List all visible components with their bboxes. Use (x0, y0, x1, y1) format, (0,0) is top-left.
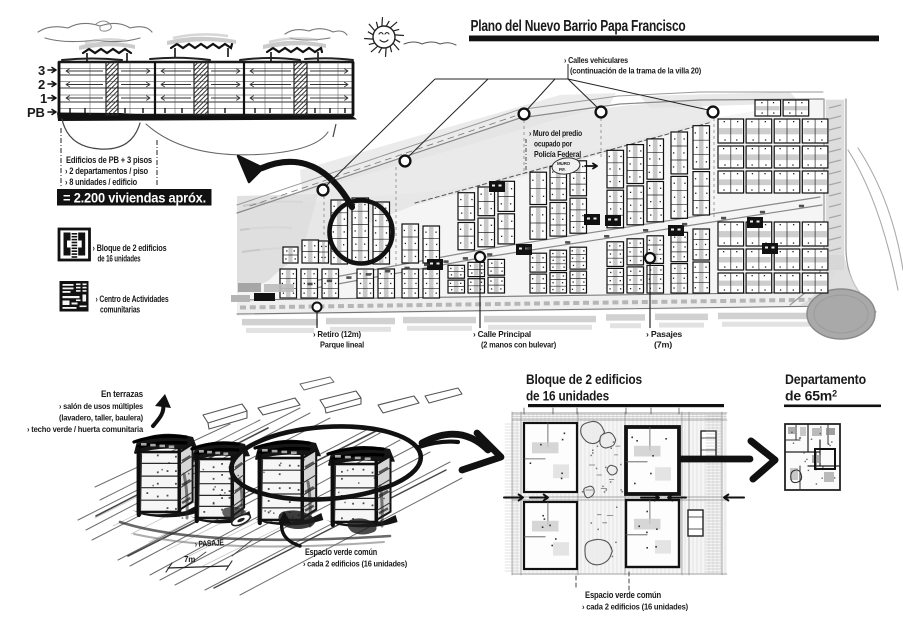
svg-text:› Muro del predio: › Muro del predio (529, 128, 582, 138)
svg-text:Bloque de 2 edificios: Bloque de 2 edificios (526, 371, 642, 387)
svg-text:(7m): (7m) (654, 341, 673, 350)
svg-text:(2 manos con bulevar): (2 manos con bulevar) (481, 341, 556, 350)
svg-text:› Bloque de 2 edificios: › Bloque de 2 edificios (93, 243, 167, 253)
svg-text:ocupado por: ocupado por (534, 139, 573, 149)
svg-text:PB: PB (27, 105, 45, 120)
svg-text:3: 3 (38, 63, 45, 78)
svg-text:de 65m2: de 65m2 (785, 388, 837, 404)
svg-text:› cada 2 edificios (16 unidade: › cada 2 edificios (16 unidades) (582, 602, 688, 612)
svg-text:MURO: MURO (557, 161, 571, 166)
svg-text:Policía Federal: Policía Federal (534, 149, 581, 159)
svg-text:› Calles vehiculares: › Calles vehiculares (564, 55, 628, 65)
svg-text:› Pasajes: › Pasajes (646, 329, 682, 339)
svg-text:› PASAJE: › PASAJE (194, 537, 224, 549)
svg-text:(lavadero, taller, baulera): (lavadero, taller, baulera) (59, 413, 143, 423)
svg-text:› 2 departamentos / piso: › 2 departamentos / piso (65, 166, 149, 176)
svg-text:› salón de usos múltiples: › salón de usos múltiples (59, 401, 143, 411)
svg-text:› 8 unidades / edificio: › 8 unidades / edificio (65, 177, 138, 187)
svg-text:Espacio verde común: Espacio verde común (585, 590, 661, 600)
svg-text:de 16 unidades: de 16 unidades (98, 254, 141, 264)
svg-text:de 16 unidades: de 16 unidades (526, 388, 609, 404)
svg-text:Espacio verde común: Espacio verde común (305, 547, 377, 557)
svg-text:1: 1 (40, 91, 47, 106)
svg-text:7m: 7m (184, 555, 195, 564)
svg-text:comunitarias: comunitarias (100, 305, 140, 315)
svg-text:2: 2 (38, 77, 45, 92)
svg-text:› Retiro (12m): › Retiro (12m) (313, 329, 361, 339)
svg-text:P.F.: P.F. (559, 167, 565, 172)
svg-text:(continuación de la trama de l: (continuación de la trama de la villa 20… (570, 67, 701, 76)
svg-text:› Calle Principal: › Calle Principal (473, 329, 531, 339)
svg-text:› techo verde / huerta comunit: › techo verde / huerta comunitaria (27, 424, 143, 434)
svg-text:En terrazas: En terrazas (101, 389, 143, 399)
svg-text:› cada 2 edificios (16 unidade: › cada 2 edificios (16 unidades) (303, 559, 407, 569)
svg-text:Plano del Nuevo Barrio Papa Fr: Plano del Nuevo Barrio Papa Francisco (471, 18, 686, 35)
svg-text:Edificios de PB + 3 pisos: Edificios de PB + 3 pisos (66, 155, 152, 165)
svg-text:› Centro de Actividades: › Centro de Actividades (96, 294, 169, 304)
svg-text:= 2.200 viviendas apróx.: = 2.200 viviendas apróx. (63, 191, 206, 206)
svg-text:Parque lineal: Parque lineal (320, 340, 364, 350)
svg-text:Departamento: Departamento (785, 371, 866, 387)
